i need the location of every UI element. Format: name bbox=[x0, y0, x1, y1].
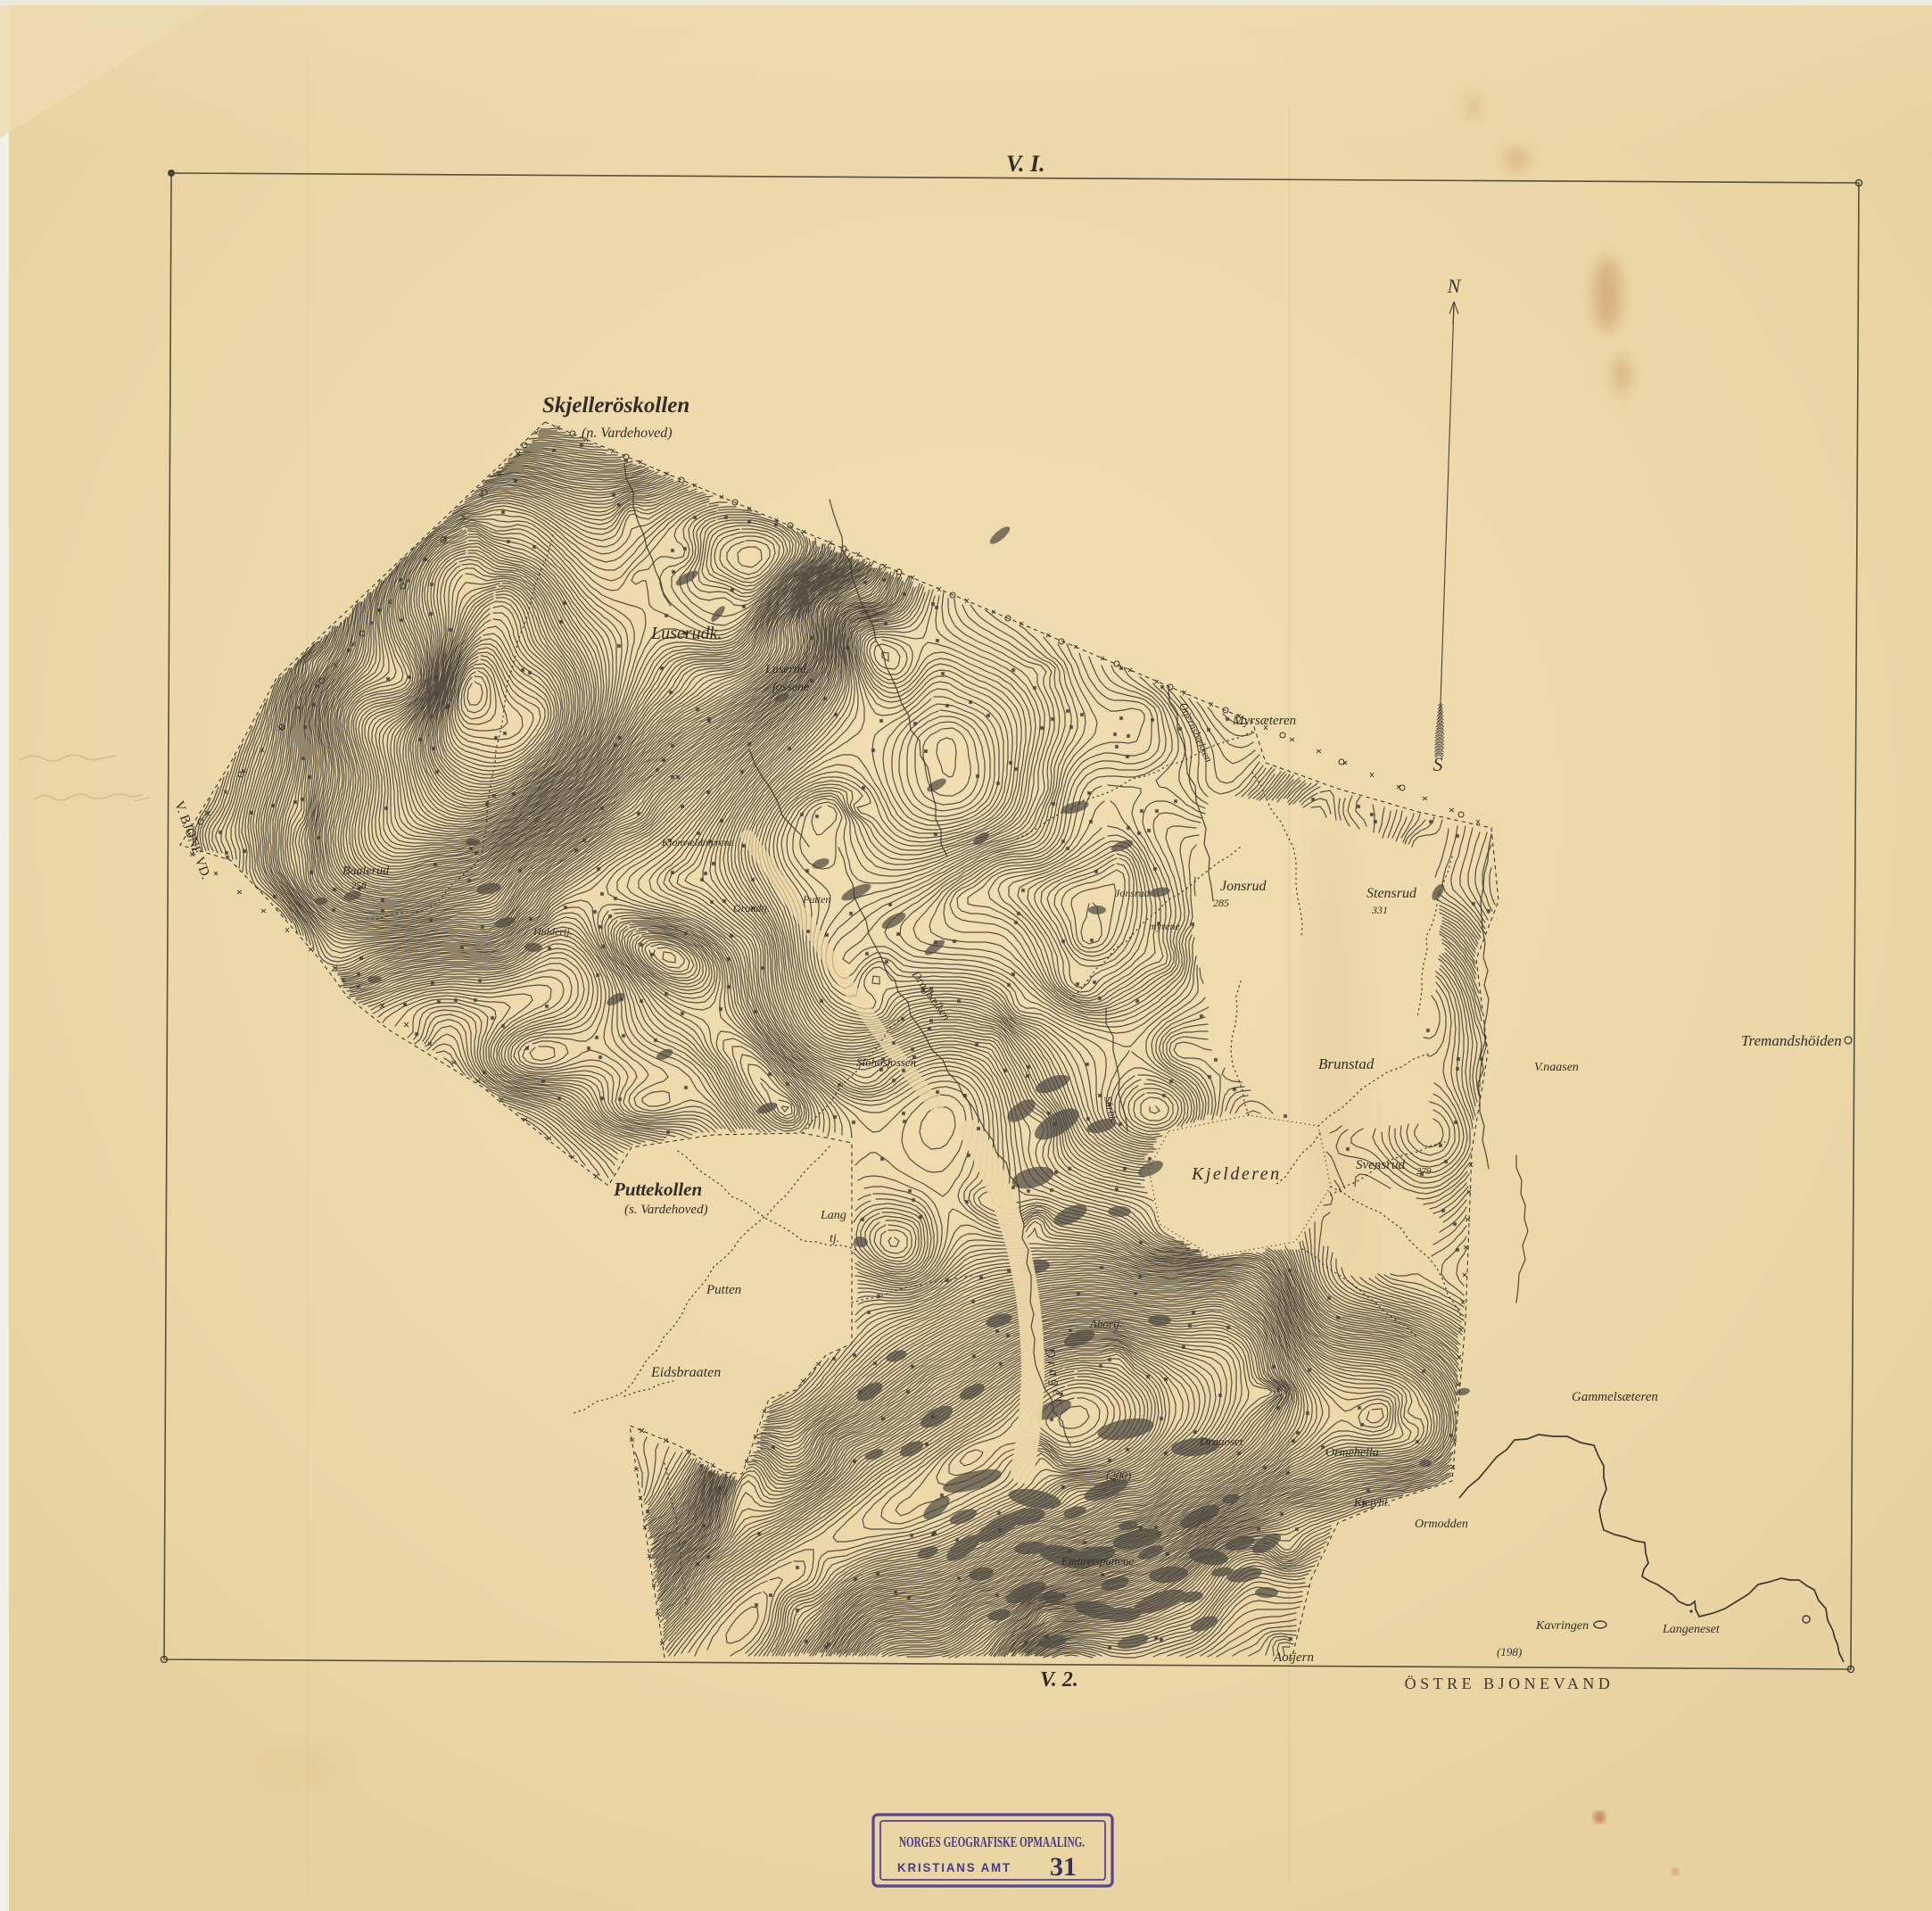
svg-text:Puttekollen: Puttekollen bbox=[613, 1179, 702, 1200]
svg-text:Stensrud: Stensrud bbox=[1366, 886, 1417, 901]
svg-text:V. 2.: V. 2. bbox=[1040, 1668, 1078, 1692]
svg-text:Tremandshöiden: Tremandshöiden bbox=[1741, 1032, 1842, 1049]
svg-text:fossene: fossene bbox=[772, 681, 809, 694]
svg-text:Gammelsæteren: Gammelsæteren bbox=[1572, 1390, 1658, 1404]
svg-text:Myrsæteren: Myrsæteren bbox=[1232, 714, 1296, 728]
svg-text:Aotjern: Aotjern bbox=[1273, 1650, 1314, 1665]
svg-text:Embretsputtene: Embretsputtene bbox=[1061, 1554, 1134, 1568]
svg-text:Kavringen: Kavringen bbox=[1535, 1619, 1589, 1633]
svg-text:(s. Vardehoved): (s. Vardehoved) bbox=[624, 1203, 708, 1217]
svg-text:KRISTIANS AMT: KRISTIANS AMT bbox=[897, 1860, 1011, 1874]
svg-text:N: N bbox=[1447, 275, 1462, 297]
svg-text:Kjonvældmyrene: Kjonvældmyrene bbox=[661, 836, 735, 848]
svg-text:Lang: Lang bbox=[820, 1209, 846, 1222]
svg-text:Svensrud: Svensrud bbox=[1356, 1158, 1405, 1172]
svg-text:Ormehella: Ormehella bbox=[1325, 1446, 1379, 1460]
svg-text:Luserud: Luserud bbox=[764, 663, 807, 676]
svg-text:Luserudk.: Luserudk. bbox=[650, 624, 722, 643]
svg-text:Huldertj.: Huldertj. bbox=[533, 925, 573, 938]
svg-text:V. I.: V. I. bbox=[1006, 151, 1045, 177]
svg-text:Eidsbraaten: Eidsbraaten bbox=[650, 1365, 721, 1380]
svg-text:Grundtj.: Grundtj. bbox=[733, 902, 770, 914]
svg-text:Langeneset: Langeneset bbox=[1662, 1623, 1721, 1636]
svg-text:S: S bbox=[1433, 753, 1443, 775]
svg-text:258: 258 bbox=[351, 881, 367, 891]
svg-text:Ormodden: Ormodden bbox=[1415, 1518, 1468, 1531]
svg-text:V.naasen: V.naasen bbox=[1534, 1061, 1579, 1074]
svg-text:Abortj.: Abortj. bbox=[1089, 1317, 1122, 1330]
svg-text:279: 279 bbox=[1416, 1166, 1432, 1177]
svg-text:(198): (198) bbox=[1497, 1645, 1522, 1659]
svg-text:Putten: Putten bbox=[706, 1283, 741, 1297]
svg-text:(200): (200) bbox=[1106, 1468, 1131, 1482]
svg-text:31: 31 bbox=[1050, 1852, 1077, 1882]
svg-text:Kjeivhl.: Kjeivhl. bbox=[1353, 1495, 1391, 1509]
svg-text:(n. Vardehoved): (n. Vardehoved) bbox=[582, 426, 673, 441]
svg-text:Kjelderen: Kjelderen bbox=[1191, 1164, 1282, 1184]
svg-text:Skjelleröskollen: Skjelleröskollen bbox=[542, 393, 689, 418]
svg-text:Dragoset: Dragoset bbox=[1199, 1435, 1243, 1448]
svg-text:285: 285 bbox=[1213, 897, 1229, 909]
svg-text:331: 331 bbox=[1371, 904, 1388, 916]
svg-text:Jonsrud: Jonsrud bbox=[1220, 879, 1267, 894]
svg-text:NORGES GEOGRAFISKE OPMAALING.: NORGES GEOGRAFISKE OPMAALING. bbox=[899, 1833, 1085, 1850]
svg-text:Slohosfossen: Slohosfossen bbox=[856, 1055, 916, 1069]
svg-text:Brunstad: Brunstad bbox=[1318, 1055, 1375, 1072]
svg-text:Baalerud: Baalerud bbox=[343, 864, 390, 878]
svg-text:ÖSTRE BJONEVAND: ÖSTRE BJONEVAND bbox=[1405, 1675, 1614, 1692]
svg-text:Putten: Putten bbox=[802, 893, 830, 906]
svg-text:myrene: myrene bbox=[1149, 920, 1181, 932]
svg-text:tj.: tj. bbox=[830, 1232, 839, 1245]
svg-text:Jonsrud: Jonsrud bbox=[1115, 887, 1151, 899]
